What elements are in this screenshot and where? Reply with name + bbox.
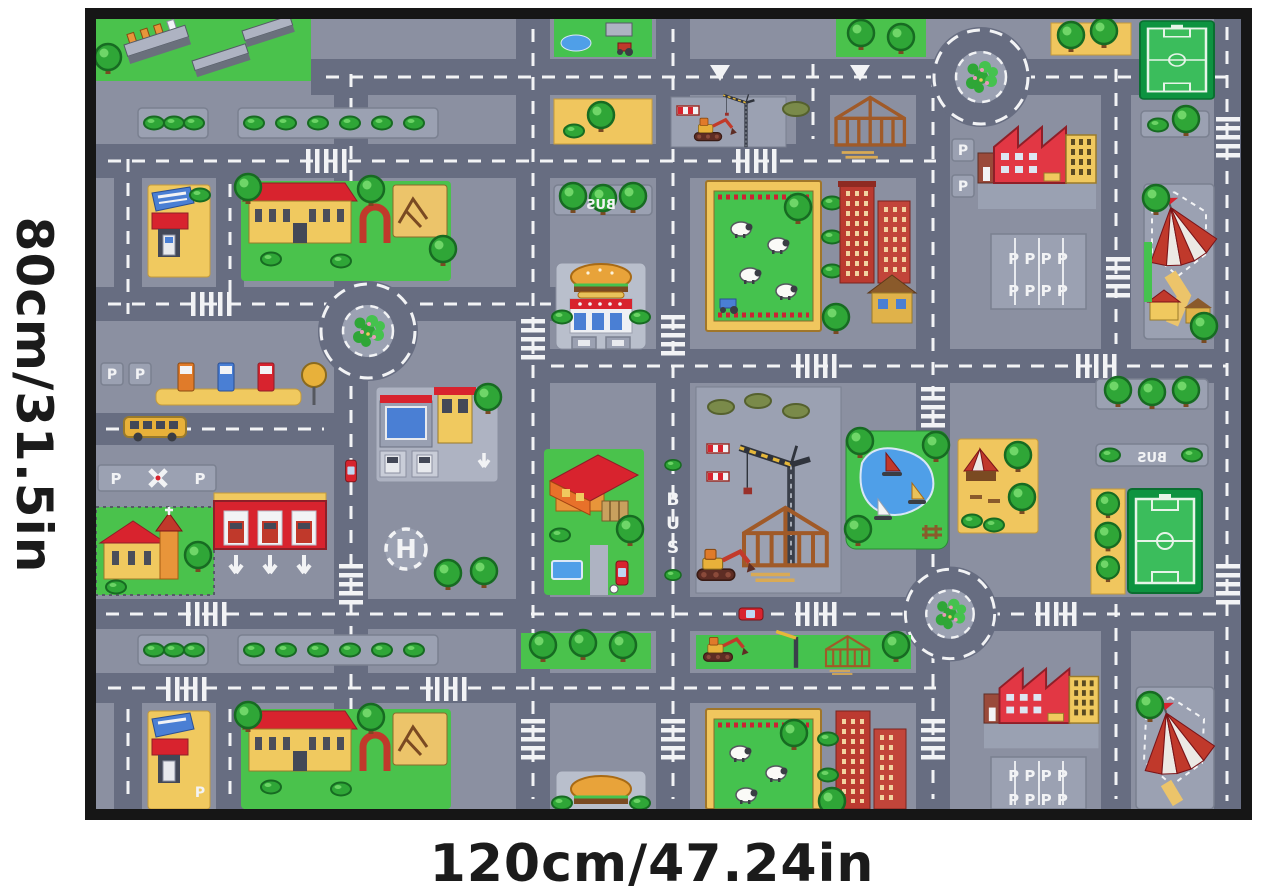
car-icon: [616, 561, 628, 585]
play-mat-frame: BUS: [85, 8, 1252, 820]
car-icon: [739, 608, 763, 620]
svg-text:B: B: [667, 490, 680, 510]
sheep-pasture-bottom: [706, 709, 821, 809]
tree-verge-bottom: [521, 630, 911, 674]
svg-text:P P P P: P P P P: [1008, 767, 1068, 785]
apartment-complex: [96, 19, 311, 81]
bus-road-marking: BUS: [586, 198, 616, 213]
car-icon: [346, 460, 357, 482]
parking-marking: P: [195, 785, 205, 801]
pond-with-sailboats: [845, 428, 949, 549]
soccer-field-right-middle: [1128, 489, 1202, 593]
roundabout-center-left: [318, 281, 418, 381]
circus-tent-bottom: [1127, 687, 1219, 809]
soccer-field-top-right: [1140, 21, 1214, 99]
mansion-with-playground: [235, 174, 456, 281]
roundabout-bottom-right: [903, 567, 998, 662]
svg-text:P: P: [958, 143, 968, 159]
tree-strip-right: [1091, 489, 1125, 594]
parking-row-with-windmill: P P: [98, 465, 216, 491]
farm-with-pond: [554, 19, 652, 57]
family-house-with-pool: [544, 449, 644, 595]
svg-text:P: P: [107, 367, 117, 383]
product-image: 80cm/31.5in: [0, 0, 1284, 896]
school-bus: [124, 417, 186, 442]
width-dimension-label: 120cm/47.24in: [292, 834, 1012, 894]
roundabout-top-right: [931, 27, 1031, 127]
tree-plaza-top-center: [554, 99, 652, 144]
helipad-marking: H: [395, 535, 417, 565]
helipad: H: [385, 528, 427, 570]
car-wash-bottom: P: [148, 711, 210, 809]
market-square: [958, 439, 1038, 533]
svg-text:S: S: [667, 538, 679, 558]
svg-text:P: P: [195, 470, 206, 488]
svg-text:P: P: [111, 470, 122, 488]
height-dimension-label: 80cm/31.5in: [3, 165, 63, 625]
sheep-pasture: [706, 181, 821, 331]
circus-tent-block: [1133, 184, 1221, 343]
car-wash: [148, 185, 210, 277]
parking-lot-bottom: P P P P P P P P: [991, 757, 1086, 809]
parking-lot: P P P P P P P P: [991, 234, 1086, 309]
mansion-with-playground-bottom: [235, 702, 451, 809]
burger-restaurant: [552, 263, 650, 349]
construction-site-center: [696, 387, 841, 593]
svg-text:P P P P: P P P P: [1008, 791, 1068, 809]
play-mat-illustration: BUS: [96, 19, 1241, 809]
car-dealership: [376, 384, 501, 482]
bus-road-marking: BUS: [1137, 451, 1167, 466]
svg-text:P: P: [135, 367, 145, 383]
svg-text:P P P P: P P P P: [1008, 250, 1068, 268]
svg-text:P: P: [958, 179, 968, 195]
fuel-pump-icon: [178, 363, 194, 391]
burger-restaurant-bottom: [552, 771, 650, 809]
svg-text:U: U: [666, 514, 680, 534]
swimming-pool: [552, 561, 582, 579]
church: [96, 507, 214, 595]
svg-text:P P P P: P P P P: [1008, 282, 1068, 300]
